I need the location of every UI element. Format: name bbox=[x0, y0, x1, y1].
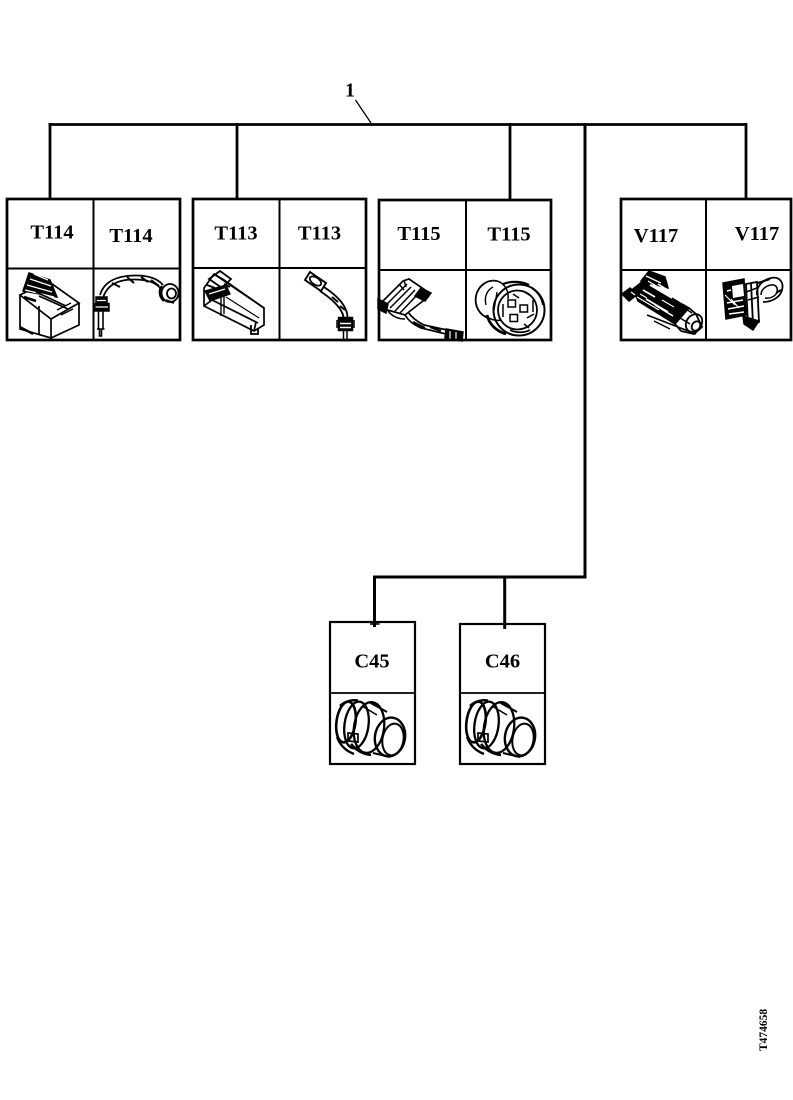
svg-text:C46: C46 bbox=[485, 651, 520, 673]
svg-text:T474658: T474658 bbox=[758, 1009, 770, 1051]
svg-text:T115: T115 bbox=[487, 224, 530, 246]
svg-text:T113: T113 bbox=[298, 223, 341, 245]
svg-text:T113: T113 bbox=[214, 223, 257, 245]
svg-text:V117: V117 bbox=[634, 225, 678, 247]
svg-text:C45: C45 bbox=[354, 651, 389, 673]
svg-text:1: 1 bbox=[345, 80, 355, 102]
svg-text:T114: T114 bbox=[30, 222, 73, 244]
svg-text:T115: T115 bbox=[397, 223, 440, 245]
svg-text:T114: T114 bbox=[109, 225, 152, 247]
svg-text:V117: V117 bbox=[735, 223, 779, 245]
